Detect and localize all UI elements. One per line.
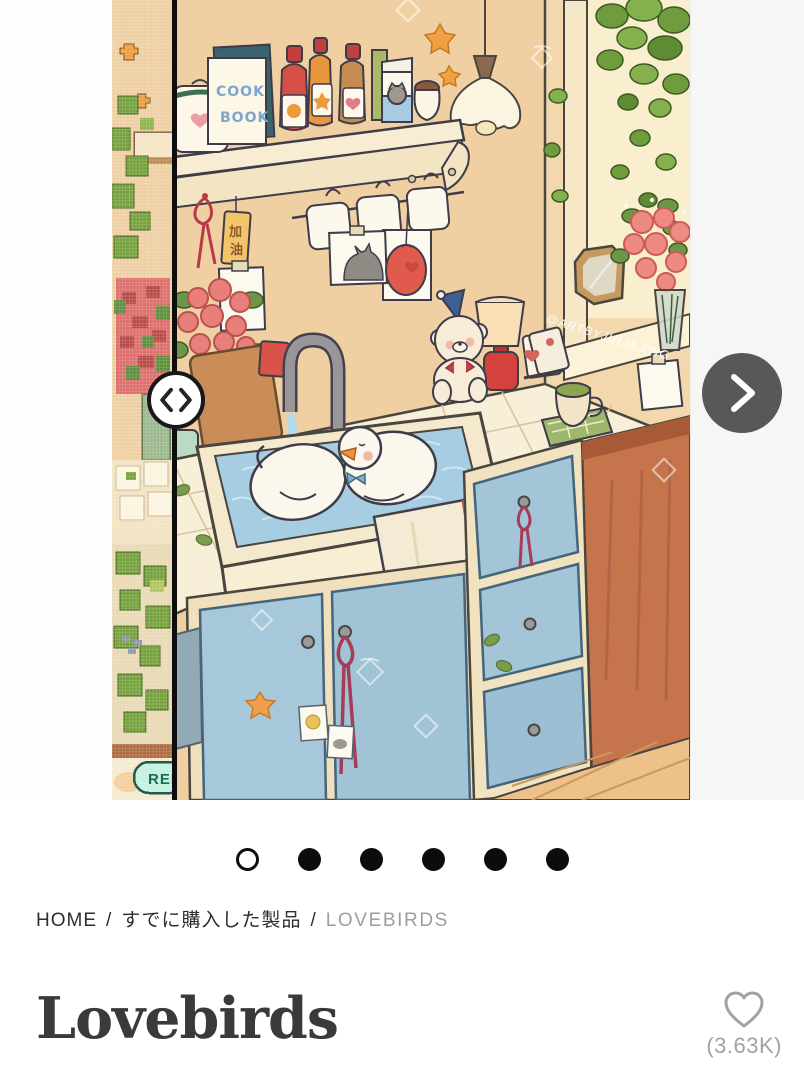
render-button-label: REN [148,771,174,788]
tag-text-bottom: 油 [230,242,243,257]
breadcrumb: HOME/すでに購入した製品/LOVEBIRDS [36,905,804,932]
compare-slider-handle[interactable] [147,371,205,429]
blue-cabinet-doors [170,560,480,800]
heart-icon[interactable] [722,990,766,1030]
drawer-unit [464,440,592,800]
carousel-dot[interactable] [484,848,507,871]
cookbook-title-line2: BOOK [220,110,269,126]
breadcrumb-item[interactable]: すでに購入した製品 [121,910,301,931]
breadcrumb-separator: / [106,910,112,931]
cookbook-title-line1: COOK [216,84,265,100]
carousel-dot[interactable] [236,848,259,871]
product-header: Lovebirds (3.63K) [36,988,782,1059]
breadcrumb-item[interactable]: HOME [36,910,97,931]
chevron-left-right-icon [155,384,197,416]
likes-count: (3.63K) [706,1033,782,1059]
render-button[interactable]: REN [134,762,174,793]
likes-block: (3.63K) [706,990,782,1059]
carousel-next-button[interactable] [702,353,782,433]
carousel-dot[interactable] [546,848,569,871]
carousel-dot[interactable] [422,848,445,871]
carousel-dot[interactable] [360,848,383,871]
product-image-carousel: COOK BOOK 加 油 [0,0,804,800]
carousel-dot[interactable] [298,848,321,871]
chevron-right-icon [720,367,764,419]
tag-text-top: 加 [228,224,242,239]
page-title: Lovebirds [36,988,338,1051]
breadcrumb-separator: / [310,910,316,931]
breadcrumb-item: LOVEBIRDS [326,910,449,931]
carousel-dots [0,800,804,871]
